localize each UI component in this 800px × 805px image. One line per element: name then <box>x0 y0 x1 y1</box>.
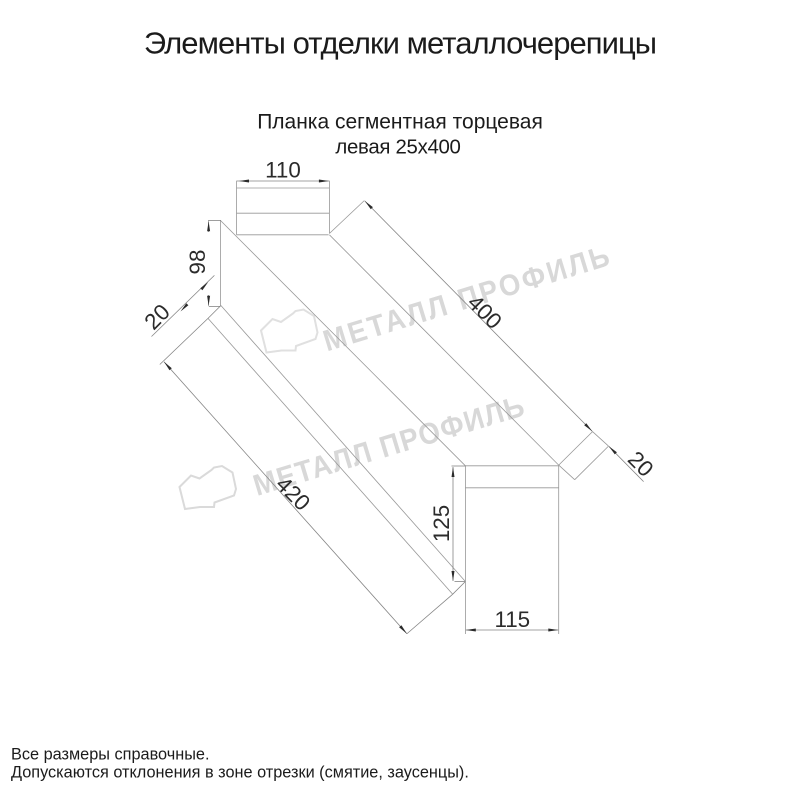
svg-text:98: 98 <box>185 250 210 275</box>
svg-text:Элементы отделки металлочерепи: Элементы отделки металлочерепицы <box>144 26 656 61</box>
svg-text:Допускаются отклонения в зоне: Допускаются отклонения в зоне отрезки (с… <box>11 763 469 781</box>
svg-text:125: 125 <box>429 505 454 542</box>
svg-text:115: 115 <box>494 607 530 632</box>
svg-text:Все размеры справочные.: Все размеры справочные. <box>11 746 209 764</box>
svg-text:110: 110 <box>265 157 301 182</box>
svg-text:левая 25х400: левая 25х400 <box>335 136 460 158</box>
svg-text:Планка сегментная торцевая: Планка сегментная торцевая <box>257 110 543 133</box>
